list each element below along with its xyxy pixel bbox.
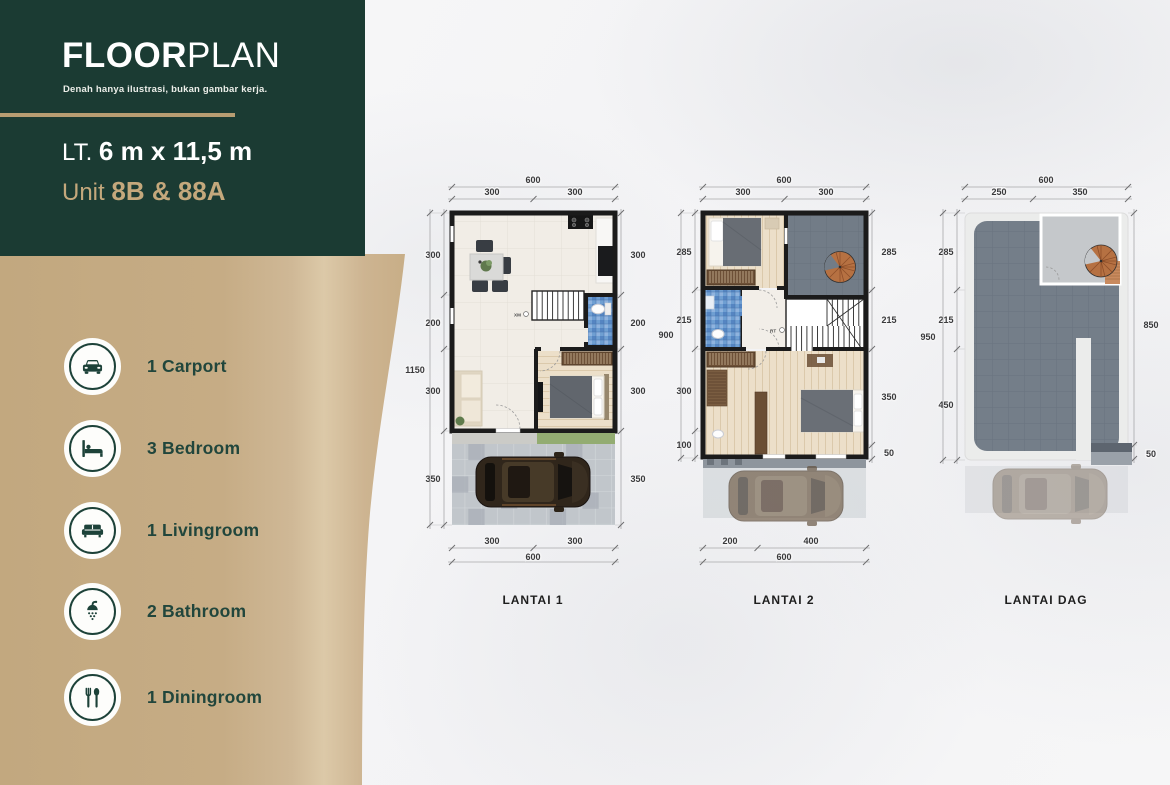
bed-icon — [79, 435, 106, 462]
dim-value: 250 — [991, 187, 1006, 197]
dim-value: 1150 — [405, 365, 425, 375]
floorplan-lantai-dag: 600 250 350 285 215 450 950 850 50 — [913, 168, 1170, 618]
dim-value: 285 — [938, 247, 953, 257]
dim-value: 200 — [722, 536, 737, 546]
amenity-label: 1 Diningroom — [147, 687, 262, 708]
dims-left: 300 200 300 350 1150 — [405, 209, 452, 529]
plan-title: LANTAI DAG — [1004, 593, 1087, 607]
dim-value: 300 — [676, 386, 691, 396]
plan-title: LANTAI 2 — [753, 593, 814, 607]
lot-size-line: LT. 6 m x 11,5 m — [62, 136, 252, 167]
dim-value: 850 — [1143, 320, 1158, 330]
bathroom — [584, 293, 615, 347]
brand-panel: FLOORPLAN Denah hanya ilustrasi, bukan g… — [0, 0, 365, 256]
dim-value: 285 — [676, 247, 691, 257]
dim-value: 300 — [425, 386, 440, 396]
cutlery-icon — [79, 684, 106, 711]
dim-value: 350 — [881, 392, 896, 402]
amenity-label: 2 Bathroom — [147, 601, 246, 622]
tv-console — [538, 382, 543, 412]
disclaimer-text: Denah hanya ilustrasi, bukan gambar kerj… — [63, 84, 267, 95]
dims-left: 285 215 300 100 900 — [658, 209, 703, 462]
title-bold: FLOOR — [62, 36, 187, 75]
page-title: FLOORPLAN — [62, 36, 280, 76]
sofa-icon — [79, 517, 106, 544]
amenity-livingroom: 1 Livingroom — [64, 502, 259, 559]
wardrobe — [562, 352, 612, 365]
bedroom — [537, 351, 613, 429]
headboard — [604, 374, 609, 420]
house-lantai-1: XM — [451, 213, 616, 525]
dim-value: 600 — [776, 552, 791, 562]
stair-label: XM — [514, 313, 521, 318]
lot-size-value: 6 m x 11,5 m — [99, 136, 252, 166]
amenity-badge — [64, 338, 121, 395]
bedroom-master — [705, 351, 864, 455]
dim-value: 350 — [630, 474, 645, 484]
side-ledge-dark — [1091, 443, 1132, 452]
side-ledge-light — [1091, 452, 1132, 465]
dim-value: 600 — [1038, 175, 1053, 185]
amenity-label: 1 Carport — [147, 356, 227, 377]
nightstand — [765, 218, 779, 229]
spiral-stair — [824, 252, 855, 283]
amenity-label: 1 Livingroom — [147, 520, 259, 541]
dim-value: 300 — [630, 250, 645, 260]
amenity-badge — [64, 420, 121, 477]
spiral-stair — [1085, 245, 1117, 277]
dims-right: 850 50 — [1128, 209, 1159, 463]
desk — [755, 392, 767, 454]
dim-value: 300 — [735, 187, 750, 197]
car-top-view — [476, 452, 590, 512]
dim-value: 300 — [818, 187, 833, 197]
amenity-label: 3 Bedroom — [147, 438, 240, 459]
dim-value: 600 — [525, 552, 540, 562]
window — [763, 455, 785, 459]
hallway — [742, 290, 786, 349]
dim-value: 300 — [630, 386, 645, 396]
dim-value: 215 — [938, 315, 953, 325]
car-top-view-faded — [729, 466, 843, 526]
bedroom-front — [705, 215, 786, 288]
dims-top: 600 300 300 — [699, 175, 870, 202]
dim-value: 300 — [567, 187, 582, 197]
dim-value: 300 — [567, 536, 582, 546]
dim-value: 350 — [1072, 187, 1087, 197]
rooftop — [965, 213, 1132, 524]
unit-prefix: Unit — [62, 179, 105, 206]
dims-top: 600 250 350 — [961, 175, 1132, 202]
dims-right: 285 215 350 50 — [866, 209, 897, 463]
roof-void — [788, 215, 864, 297]
dim-value: 300 — [484, 536, 499, 546]
plan-title: LANTAI 1 — [502, 593, 563, 607]
title-light: PLAN — [187, 36, 280, 75]
window — [816, 455, 846, 459]
dim-value: 950 — [920, 332, 935, 342]
amenity-badge — [64, 502, 121, 559]
dim-value: 50 — [1146, 449, 1156, 459]
bathroom — [705, 290, 742, 349]
dims-bottom: 200 400 600 — [699, 536, 870, 565]
dim-value: 215 — [676, 315, 691, 325]
dim-value: 600 — [525, 175, 540, 185]
dim-value: 600 — [776, 175, 791, 185]
grass-strip — [537, 433, 615, 444]
roof-notch — [1076, 338, 1091, 460]
plant — [456, 417, 465, 426]
dim-value: 300 — [484, 187, 499, 197]
dim-value: 900 — [658, 330, 673, 340]
amenity-carport: 1 Carport — [64, 338, 227, 395]
lot-prefix: LT. — [62, 139, 92, 166]
living-room — [454, 371, 482, 426]
dim-value: 200 — [630, 318, 645, 328]
dim-value: 300 — [425, 250, 440, 260]
dims-right: 300 200 300 350 — [615, 209, 646, 529]
window — [451, 308, 454, 324]
unit-value: 8B & 88A — [111, 176, 225, 206]
carport — [452, 444, 615, 525]
dim-value: 200 — [425, 318, 440, 328]
car-icon — [79, 353, 106, 380]
floorplan-lantai-1: 600 300 300 300 200 300 350 1150 300 200… — [400, 168, 670, 618]
window — [785, 228, 788, 244]
amenity-diningroom: 1 Diningroom — [64, 669, 262, 726]
dim-value: 350 — [425, 474, 440, 484]
roof-terrace — [1041, 215, 1120, 284]
floorplan-lantai-2: 600 300 300 285 215 300 100 900 285 215 … — [651, 168, 921, 618]
dim-value: 285 — [881, 247, 896, 257]
lower-floor-ghost — [703, 459, 866, 526]
dim-value: 100 — [676, 440, 691, 450]
amenity-badge — [64, 669, 121, 726]
entry-door — [496, 429, 520, 433]
dims-bottom: 300 300 600 — [448, 536, 619, 565]
stove — [568, 215, 593, 229]
window — [451, 226, 454, 242]
amenity-bedroom: 3 Bedroom — [64, 420, 240, 477]
unit-line: Unit 8B & 88A — [62, 176, 226, 207]
gold-divider — [0, 113, 235, 117]
poster: FLOORPLAN Denah hanya ilustrasi, bukan g… — [0, 0, 1170, 785]
house-lantai-2: RT — [703, 213, 866, 526]
shower-icon — [79, 598, 106, 625]
car-top-view-faded — [993, 464, 1107, 524]
dims-top: 600 300 300 — [448, 175, 619, 202]
lower-floor-ghost — [965, 464, 1128, 524]
dim-value: 450 — [938, 400, 953, 410]
amenity-bathroom: 2 Bathroom — [64, 583, 246, 640]
porch-strip — [452, 433, 537, 444]
dim-value: 400 — [803, 536, 818, 546]
dim-value: 50 — [884, 448, 894, 458]
toilet — [713, 430, 724, 438]
stair-label: RT — [770, 329, 776, 334]
amenity-badge — [64, 583, 121, 640]
dims-left: 285 215 450 950 — [920, 209, 965, 464]
dim-value: 215 — [881, 315, 896, 325]
